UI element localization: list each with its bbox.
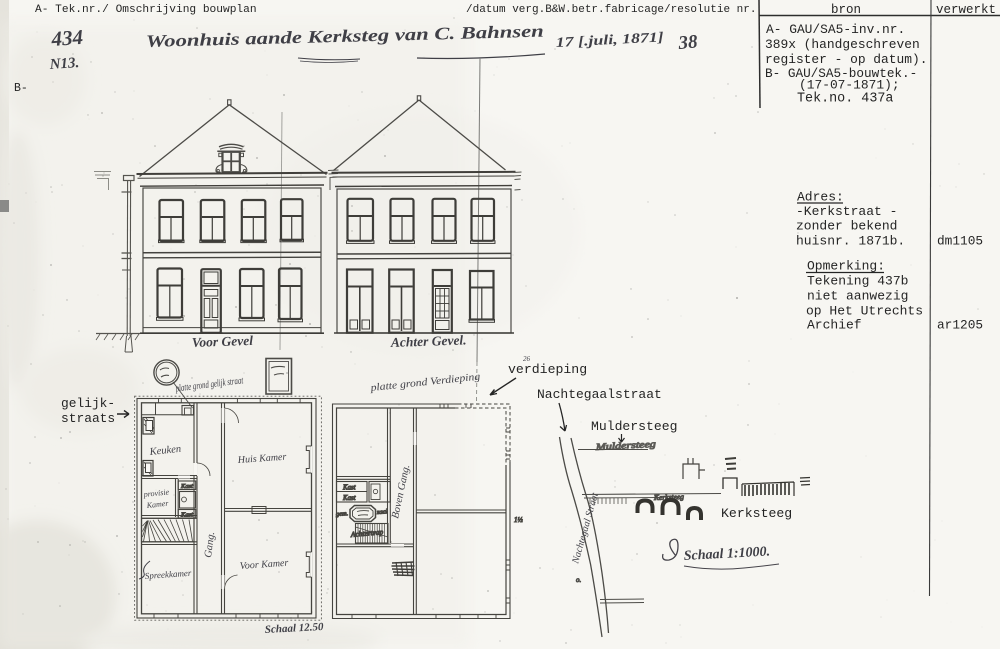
svg-text:dm1105: dm1105: [937, 234, 983, 249]
svg-text:38: 38: [677, 31, 699, 54]
svg-text:(17-07-1871);: (17-07-1871);: [799, 78, 900, 93]
svg-text:26: 26: [523, 355, 531, 363]
svg-text:Tek.no. 437a: Tek.no. 437a: [797, 92, 893, 107]
svg-text:zonder bekend: zonder bekend: [796, 219, 897, 234]
svg-text:/datum verg.B&W.betr.fabricage: /datum verg.B&W.betr.fabricage/resolutie…: [466, 4, 756, 16]
svg-text:op Het Utrechts: op Het Utrechts: [806, 304, 923, 319]
svg-text:gem.: gem.: [336, 510, 349, 518]
svg-text:Muldersteeg: Muldersteeg: [591, 419, 677, 434]
svg-text:Achter Gevel.: Achter Gevel.: [390, 332, 467, 350]
svg-text:Voor Gevel: Voor Gevel: [192, 333, 254, 350]
svg-text:A- Tek.nr./ Omschrijving bouwp: A- Tek.nr./ Omschrijving bouwplan: [35, 4, 257, 16]
svg-text:Opmerking:: Opmerking:: [807, 259, 885, 274]
svg-text:Kast: Kast: [342, 485, 357, 492]
svg-text:verdieping: verdieping: [508, 362, 587, 377]
svg-text:Kast: Kast: [180, 512, 193, 519]
svg-text:straats: straats: [61, 411, 115, 426]
svg-text:-Kerkstraat -: -Kerkstraat -: [796, 204, 897, 219]
svg-text:gelijk-: gelijk-: [61, 396, 115, 411]
svg-text:Kast: Kast: [180, 483, 193, 490]
svg-text:A- GAU/SA5-inv.nr.: A- GAU/SA5-inv.nr.: [766, 22, 905, 37]
svg-text:ar1205: ar1205: [937, 318, 983, 333]
svg-text:Archief: Archief: [807, 318, 862, 333]
svg-text:434: 434: [50, 25, 84, 51]
svg-text:Kast: Kast: [342, 495, 357, 502]
svg-text:huisnr. 1871b.: huisnr. 1871b.: [796, 234, 905, 249]
svg-text:N13.: N13.: [48, 55, 80, 73]
svg-text:389x (handgeschreven: 389x (handgeschreven: [765, 37, 920, 52]
svg-text:Kerksteeg: Kerksteeg: [721, 506, 792, 521]
svg-text:o.: o.: [576, 576, 582, 584]
svg-text:1½: 1½: [514, 516, 524, 524]
svg-text:register - op datum).: register - op datum).: [765, 52, 927, 67]
svg-text:Adres:: Adres:: [797, 190, 844, 205]
svg-text:zaal: zaal: [376, 508, 388, 516]
svg-text:Nachtegaalstraat: Nachtegaalstraat: [537, 387, 662, 402]
svg-text:niet aanwezig: niet aanwezig: [807, 289, 908, 304]
svg-text:Tekening 437b: Tekening 437b: [807, 274, 908, 289]
svg-text:B-: B-: [14, 82, 28, 95]
